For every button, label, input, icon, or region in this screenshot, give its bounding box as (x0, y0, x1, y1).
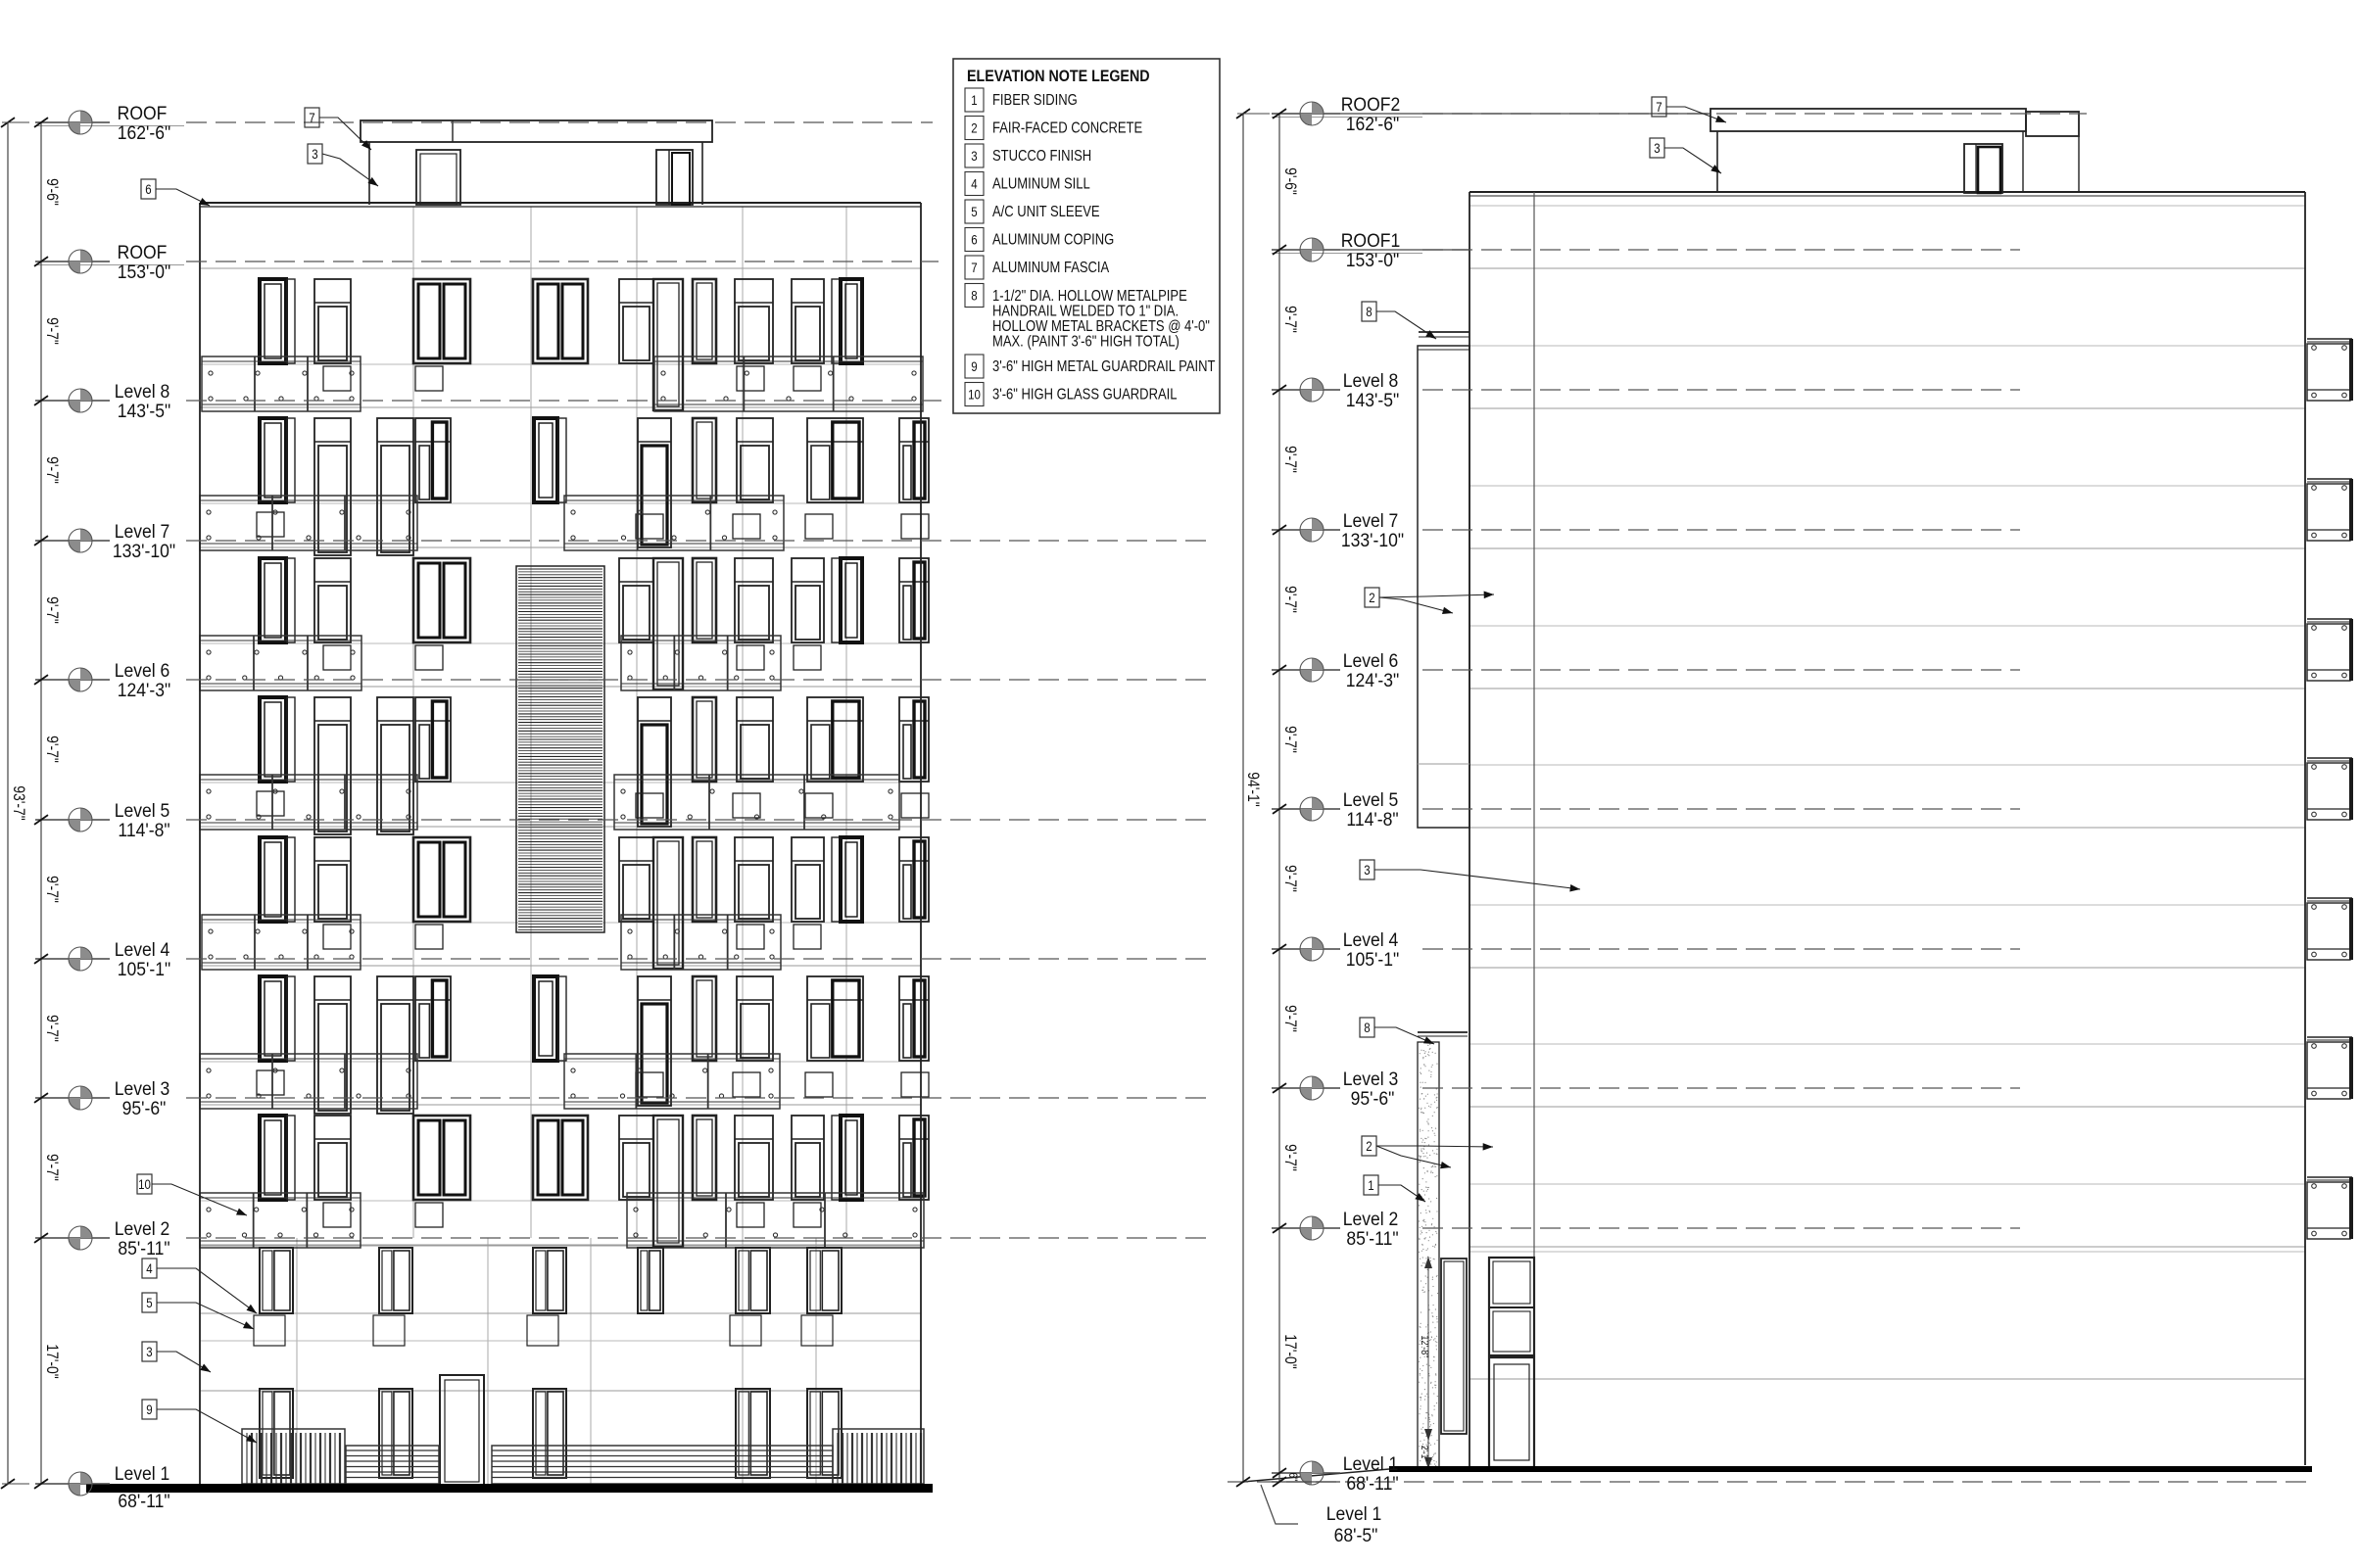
svg-text:8: 8 (1364, 1020, 1370, 1035)
svg-text:1: 1 (1368, 1177, 1373, 1193)
svg-text:9'-7": 9'-7" (43, 596, 62, 624)
svg-text:Level 1: Level 1 (115, 1462, 170, 1484)
svg-text:Level 2: Level 2 (115, 1217, 170, 1239)
svg-text:9'-7": 9'-7" (43, 876, 62, 903)
svg-text:95'-6": 95'-6" (122, 1097, 167, 1118)
svg-text:68'-5": 68'-5" (1334, 1524, 1378, 1545)
svg-text:FIBER SIDING: FIBER SIDING (992, 92, 1078, 109)
svg-text:Level 2: Level 2 (1343, 1208, 1399, 1229)
svg-text:2: 2 (971, 119, 977, 135)
svg-text:Level 6: Level 6 (1343, 649, 1399, 671)
svg-text:ELEVATION NOTE LEGEND: ELEVATION NOTE LEGEND (967, 68, 1150, 85)
svg-text:3: 3 (312, 146, 317, 162)
svg-text:10: 10 (138, 1176, 151, 1192)
svg-text:9: 9 (146, 1402, 152, 1417)
svg-text:7: 7 (309, 110, 314, 125)
svg-text:Level 8: Level 8 (115, 380, 170, 402)
svg-text:7: 7 (971, 260, 977, 275)
svg-text:162'-6": 162'-6" (118, 121, 170, 143)
svg-text:17'-0": 17'-0" (43, 1344, 62, 1378)
svg-text:9'-7": 9'-7" (43, 736, 62, 763)
svg-text:85'-11": 85'-11" (1346, 1227, 1398, 1249)
svg-text:143'-5": 143'-5" (1346, 389, 1399, 410)
svg-text:17'-0": 17'-0" (1281, 1334, 1300, 1368)
svg-text:68'-11": 68'-11" (1346, 1472, 1398, 1494)
svg-text:3: 3 (146, 1344, 152, 1359)
svg-text:162'-6": 162'-6" (1346, 113, 1399, 134)
svg-text:6: 6 (971, 231, 977, 247)
svg-text:Level 5: Level 5 (115, 799, 170, 821)
svg-text:2'-1": 2'-1" (1420, 1446, 1430, 1461)
svg-text:ALUMINUM COPING: ALUMINUM COPING (992, 232, 1114, 249)
svg-text:9'-7": 9'-7" (1281, 1005, 1300, 1032)
svg-text:153'-0": 153'-0" (118, 261, 170, 282)
svg-text:124'-3": 124'-3" (118, 679, 170, 700)
svg-text:Level 4: Level 4 (115, 938, 170, 960)
svg-text:95'-6": 95'-6" (1351, 1087, 1395, 1109)
svg-text:9: 9 (971, 358, 977, 374)
svg-text:Level 3: Level 3 (1343, 1068, 1399, 1089)
svg-text:ROOF1: ROOF1 (1341, 229, 1400, 251)
svg-text:8: 8 (971, 287, 977, 303)
svg-text:2: 2 (1366, 1138, 1372, 1154)
svg-text:9'-7": 9'-7" (1281, 306, 1300, 333)
svg-text:Level 6: Level 6 (115, 659, 170, 681)
svg-text:Level 3: Level 3 (115, 1077, 170, 1099)
svg-text:MAX. (PAINT 3'-6" HIGH TOTAL): MAX. (PAINT 3'-6" HIGH TOTAL) (992, 334, 1180, 351)
svg-text:114'-8": 114'-8" (1346, 808, 1398, 830)
svg-text:3'-6" HIGH METAL GUARDRAIL PAI: 3'-6" HIGH METAL GUARDRAIL PAINT (992, 358, 1216, 375)
svg-text:Level 4: Level 4 (1343, 928, 1399, 950)
svg-text:9'-7": 9'-7" (1281, 865, 1300, 892)
svg-text:85'-11": 85'-11" (118, 1237, 169, 1259)
svg-text:ALUMINUM SILL: ALUMINUM SILL (992, 176, 1090, 193)
svg-text:Level 5: Level 5 (1343, 788, 1399, 810)
svg-text:ALUMINUM FASCIA: ALUMINUM FASCIA (992, 260, 1110, 276)
svg-text:3: 3 (1654, 140, 1660, 156)
svg-text:94'-1": 94'-1" (1244, 772, 1263, 806)
svg-text:Level 1: Level 1 (1326, 1502, 1382, 1524)
svg-text:12'-8": 12'-8" (1419, 1336, 1430, 1358)
svg-text:105'-1": 105'-1" (1346, 948, 1399, 970)
svg-text:1: 1 (971, 92, 977, 108)
svg-text:7: 7 (1656, 99, 1662, 115)
svg-text:3: 3 (1364, 862, 1370, 878)
svg-text:9'-7": 9'-7" (43, 1015, 62, 1042)
svg-text:114'-8": 114'-8" (118, 819, 169, 840)
svg-text:Level 8: Level 8 (1343, 369, 1399, 391)
svg-text:9'-7": 9'-7" (1281, 726, 1300, 753)
svg-text:STUCCO FINISH: STUCCO FINISH (992, 148, 1091, 165)
svg-text:5: 5 (146, 1295, 152, 1310)
svg-text:133'-10": 133'-10" (1341, 529, 1404, 550)
svg-text:133'-10": 133'-10" (113, 540, 175, 561)
svg-text:68'-11": 68'-11" (118, 1490, 169, 1511)
svg-text:Level 7: Level 7 (115, 520, 170, 542)
svg-text:ROOF2: ROOF2 (1341, 93, 1400, 115)
svg-text:A/C UNIT SLEEVE: A/C UNIT SLEEVE (992, 204, 1100, 220)
svg-text:9'-7": 9'-7" (43, 1154, 62, 1181)
svg-text:9'-7": 9'-7" (1281, 1144, 1300, 1171)
svg-text:6": 6" (1286, 1473, 1299, 1482)
svg-text:105'-1": 105'-1" (118, 958, 170, 979)
svg-text:5: 5 (971, 204, 977, 219)
svg-text:4: 4 (971, 175, 977, 191)
svg-text:3: 3 (971, 148, 977, 164)
svg-text:2: 2 (1369, 590, 1374, 605)
svg-text:4: 4 (146, 1260, 152, 1276)
svg-text:FAIR-FACED CONCRETE: FAIR-FACED CONCRETE (992, 120, 1142, 137)
svg-text:ROOF: ROOF (118, 102, 168, 123)
svg-text:9'-6": 9'-6" (1281, 167, 1300, 195)
svg-text:93'-7": 93'-7" (10, 785, 28, 820)
svg-text:Level 7: Level 7 (1343, 509, 1399, 531)
svg-text:153'-0": 153'-0" (1346, 249, 1399, 270)
svg-text:9'-7": 9'-7" (43, 456, 62, 484)
svg-text:124'-3": 124'-3" (1346, 669, 1399, 690)
svg-text:6: 6 (145, 181, 151, 197)
svg-text:Level 1: Level 1 (1343, 1452, 1399, 1474)
svg-text:3'-6" HIGH GLASS GUARDRAIL: 3'-6" HIGH GLASS GUARDRAIL (992, 387, 1178, 404)
svg-text:9'-7": 9'-7" (1281, 586, 1300, 613)
svg-text:9'-7": 9'-7" (1281, 446, 1300, 473)
svg-text:143'-5": 143'-5" (118, 400, 170, 421)
svg-text:8: 8 (1366, 304, 1372, 319)
svg-text:9'-7": 9'-7" (43, 317, 62, 345)
svg-text:10: 10 (968, 386, 981, 402)
svg-text:9'-6": 9'-6" (43, 178, 62, 206)
svg-text:ROOF: ROOF (118, 241, 168, 262)
